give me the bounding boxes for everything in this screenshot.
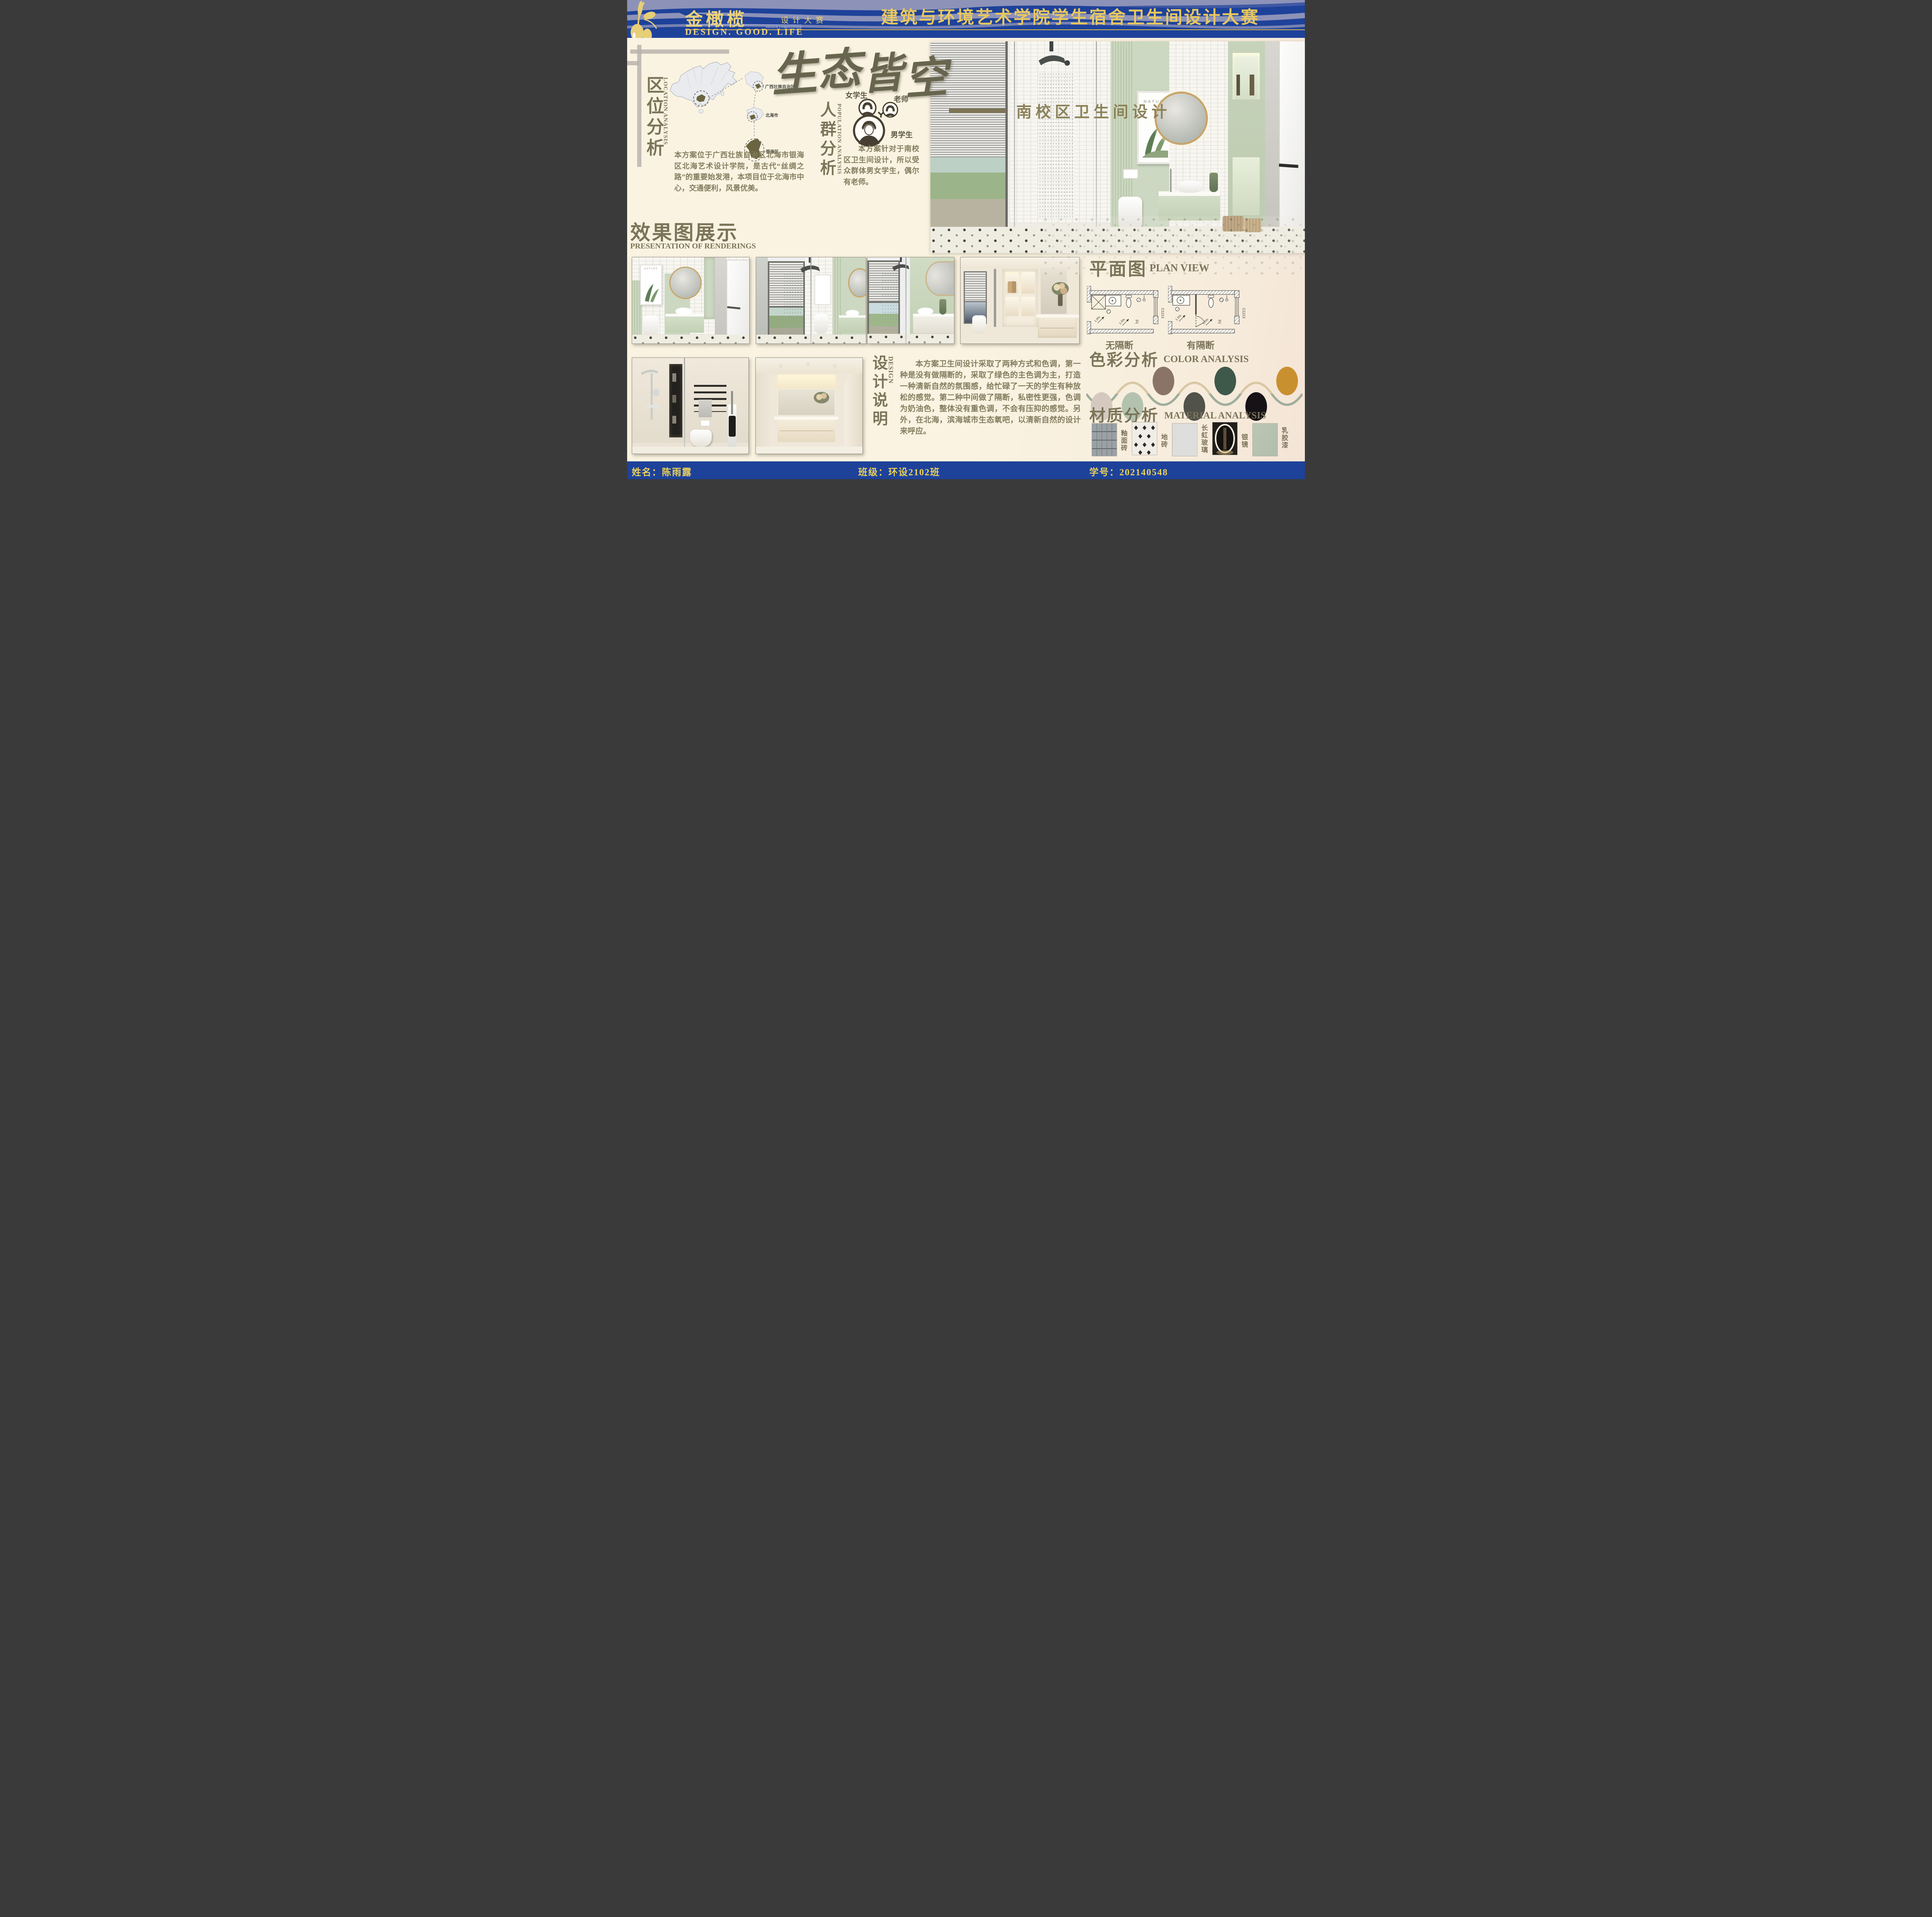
frame-line-stub: [627, 61, 639, 65]
renderings-title-en: PRESENTATION OF RENDERINGS: [630, 242, 756, 251]
population-group-male-label: 男学生: [891, 129, 913, 139]
male-student-icon: [853, 114, 885, 147]
poster-title: 建筑与环境艺术学院学生宿舍卫生间设计大赛: [836, 3, 1305, 28]
material-label-silver-mirror: 银镜: [1239, 434, 1249, 448]
population-body: 本方案针对于南校区卫生间设计，所以受众群体男女学生，偶尔有老师。: [844, 144, 919, 198]
r4-floor: [961, 338, 1080, 344]
material-label-floor-tile: 地砖: [1159, 434, 1168, 448]
design-note-body: 本方案卫生间设计采取了两种方式和色调，第一种是没有做隔断的，采取了绿色的主色调为…: [900, 359, 1081, 453]
r3-mirror-arc: [925, 261, 954, 296]
calligraphy-char-1: 生: [769, 36, 819, 105]
footer-class: 班级：环设2102班: [858, 464, 940, 478]
r5-shower-set: [639, 367, 666, 425]
r6-right-arch: [845, 373, 863, 454]
color-swatch-3: [1153, 367, 1174, 395]
r2-vanity: [839, 318, 866, 333]
rendering-6: [755, 357, 863, 454]
material-label-fluted-glass: 长虹玻璃: [1199, 424, 1209, 454]
r6-mirror-band: [777, 389, 835, 416]
rendering-3: [867, 257, 954, 344]
r6-drawer-line: [780, 430, 833, 431]
r5-niche-bottle-3: [672, 416, 676, 424]
r1-poster-label: NATURE: [641, 268, 661, 270]
population-title: 人群分析: [815, 101, 838, 190]
r6-downlight-3: [833, 364, 837, 367]
r1-floor: [632, 335, 750, 344]
material-swatch-glazed-tile: [1092, 423, 1117, 456]
hero-green-vase: [1209, 173, 1218, 192]
material-swatch-fluted-glass: [1172, 423, 1197, 456]
r6-left-wall: [756, 373, 771, 454]
r4-window: [964, 271, 987, 302]
plan1-window-code: C1213: [1161, 308, 1164, 318]
rendering-5: [632, 357, 749, 454]
r4-niche-4: [1022, 297, 1035, 316]
r2-mirror-strip: [756, 257, 768, 344]
r2-toilet: [814, 314, 828, 334]
hero-caption-dash: [949, 109, 1006, 113]
r4-bottles: [1008, 281, 1016, 293]
r2-sink: [846, 310, 859, 316]
plan2-room-label: 卫: [1218, 320, 1221, 324]
r1-shelf-column: [704, 257, 715, 319]
r1-sink: [675, 308, 692, 315]
r4-niche-2: [1022, 272, 1035, 294]
floor-plan-partition: C1213 1.5% 1.5% 卫: [1168, 286, 1245, 337]
plan2-window-code: C1213: [1242, 308, 1245, 318]
material-swatch-silver-mirror: [1212, 422, 1238, 455]
plan-title-en: PLAN VIEW: [1150, 262, 1209, 274]
r5-glass: [684, 358, 685, 454]
hero-vessel-sink: [1176, 180, 1203, 193]
r4-toilet: [972, 315, 986, 334]
r6-flowers: [814, 392, 829, 403]
r5-toilet: [690, 430, 712, 447]
r3-floor: [867, 334, 954, 344]
r2-water: [783, 273, 803, 331]
plan2-slope-1: 1.5%: [1175, 314, 1182, 321]
r5-niche-bottle-2: [672, 395, 676, 403]
r4-niche-3: [1005, 297, 1019, 316]
material-swatch-floor-tile: [1132, 422, 1157, 455]
r4-vase: [1058, 294, 1063, 306]
mirror-pattern: [1213, 422, 1237, 455]
header-banner: 金橄榄 设计大赛 DESIGN COMPETITION DESIGN. GOOD…: [627, 0, 1305, 38]
r6-cove-light: [777, 375, 835, 389]
r5-washer-handle: [731, 391, 733, 414]
plan-title: 平面图: [1089, 255, 1147, 281]
r5-niche-bottle-1: [672, 373, 676, 382]
color-swatch-7: [1276, 367, 1298, 395]
rendering-2: [756, 257, 866, 344]
r6-counter: [774, 417, 838, 420]
population-title-en: POPULATION ANALYSIS: [836, 104, 842, 200]
r3-glass: [905, 257, 906, 344]
location-body: 本方案位于广西壮族自治区北海市银海区北海艺术设计学院，是古代“丝绸之路”的重要始…: [674, 150, 804, 226]
calligraphy-char-2: 态: [815, 33, 862, 99]
footer-bar: 姓名：陈雨露 班级：环设2102班 学号：202140548: [627, 461, 1305, 479]
floor-tile-pattern: [1132, 422, 1157, 455]
color-swatch-5: [1214, 367, 1236, 395]
r5-washer-body: [729, 416, 736, 437]
design-note-title-en: DESIGN: [887, 356, 895, 426]
hero-niche-bottles: [1236, 75, 1254, 95]
hero-shower-head: [1027, 41, 1089, 88]
rendering-1: NATURE: [632, 257, 750, 344]
floor-plan-open: C1213 1.5% 1.5% 卫: [1087, 286, 1164, 337]
hero-window-view: [930, 157, 1008, 227]
hero-glass-panel: [1014, 41, 1015, 253]
r4-drawer-line: [1040, 328, 1074, 328]
r1-poster-leaf: [643, 276, 660, 303]
plan1-slope-2: 1.5%: [1118, 318, 1126, 325]
color-title-en: COLOR ANALYSIS: [1163, 354, 1249, 365]
r1-door: [726, 260, 750, 344]
hero-water-spray: [1039, 72, 1073, 219]
hero-caption: 南校区卫生间设计: [1016, 99, 1171, 122]
renderings-title: 效果图展示: [630, 216, 738, 245]
frame-line-horizontal: [630, 49, 729, 54]
r2-poster: [814, 274, 831, 305]
r4-shower-column: [994, 269, 996, 327]
hero-faucet: [1170, 169, 1172, 192]
r5-towel: [699, 400, 712, 417]
beihai-city-shape: [747, 107, 764, 121]
brand-tagline: DESIGN. GOOD. LIFE: [685, 27, 804, 37]
r3-water: [881, 269, 898, 331]
material-label-glazed-tile: 釉面砖: [1119, 430, 1128, 452]
r1-nature-poster: NATURE: [640, 264, 662, 305]
material-swatch-latex-paint: [1252, 423, 1278, 456]
r5-flush-plate: [700, 420, 710, 427]
r5-floor: [632, 447, 749, 454]
brand-divider: [686, 25, 802, 25]
r3-counter: [913, 314, 954, 316]
plan2-slope-2: 1.5%: [1202, 318, 1209, 325]
r6-downlight-1: [779, 364, 782, 367]
competition-poster: 金橄榄 设计大赛 DESIGN COMPETITION DESIGN. GOOD…: [627, 0, 1305, 479]
label-beihai: 北海市: [765, 112, 778, 118]
r6-floor: [756, 447, 863, 454]
plan-label-partition: 有隔断: [1187, 338, 1214, 351]
r1-mirror: [669, 267, 702, 299]
r6-downlight-2: [806, 362, 810, 366]
guangxi-province-shape: [745, 71, 764, 89]
calligraphy-char-3: 皆: [859, 39, 905, 102]
footer-name: 姓名：陈雨露: [632, 464, 692, 478]
r4-flowers: [1052, 282, 1069, 295]
calligraphy-char-4: 空: [901, 42, 949, 107]
r1-marble: [715, 257, 726, 344]
brand-subtitle: 设计大赛: [781, 14, 827, 25]
r4-counter: [1036, 315, 1080, 318]
r3-vase: [939, 299, 946, 315]
material-label-latex-paint: 乳胶漆: [1279, 427, 1289, 449]
plan1-room-label: 卫: [1135, 320, 1139, 324]
r3-sink: [918, 308, 933, 315]
r3-vanity: [913, 316, 954, 333]
r6-ceiling: [756, 358, 863, 373]
hero-flush-plate: [1123, 169, 1138, 179]
material-title-en: MATERIAL ANALYSIS: [1164, 410, 1266, 421]
hero-niche-bottom: [1233, 157, 1260, 215]
r2-glass: [810, 257, 811, 344]
olive-branch-logo: [627, 0, 673, 38]
footer-student-id: 学号：202140548: [1089, 464, 1168, 478]
r1-vanity: [665, 316, 704, 333]
plan1-slope-1: 1.5%: [1094, 315, 1101, 323]
